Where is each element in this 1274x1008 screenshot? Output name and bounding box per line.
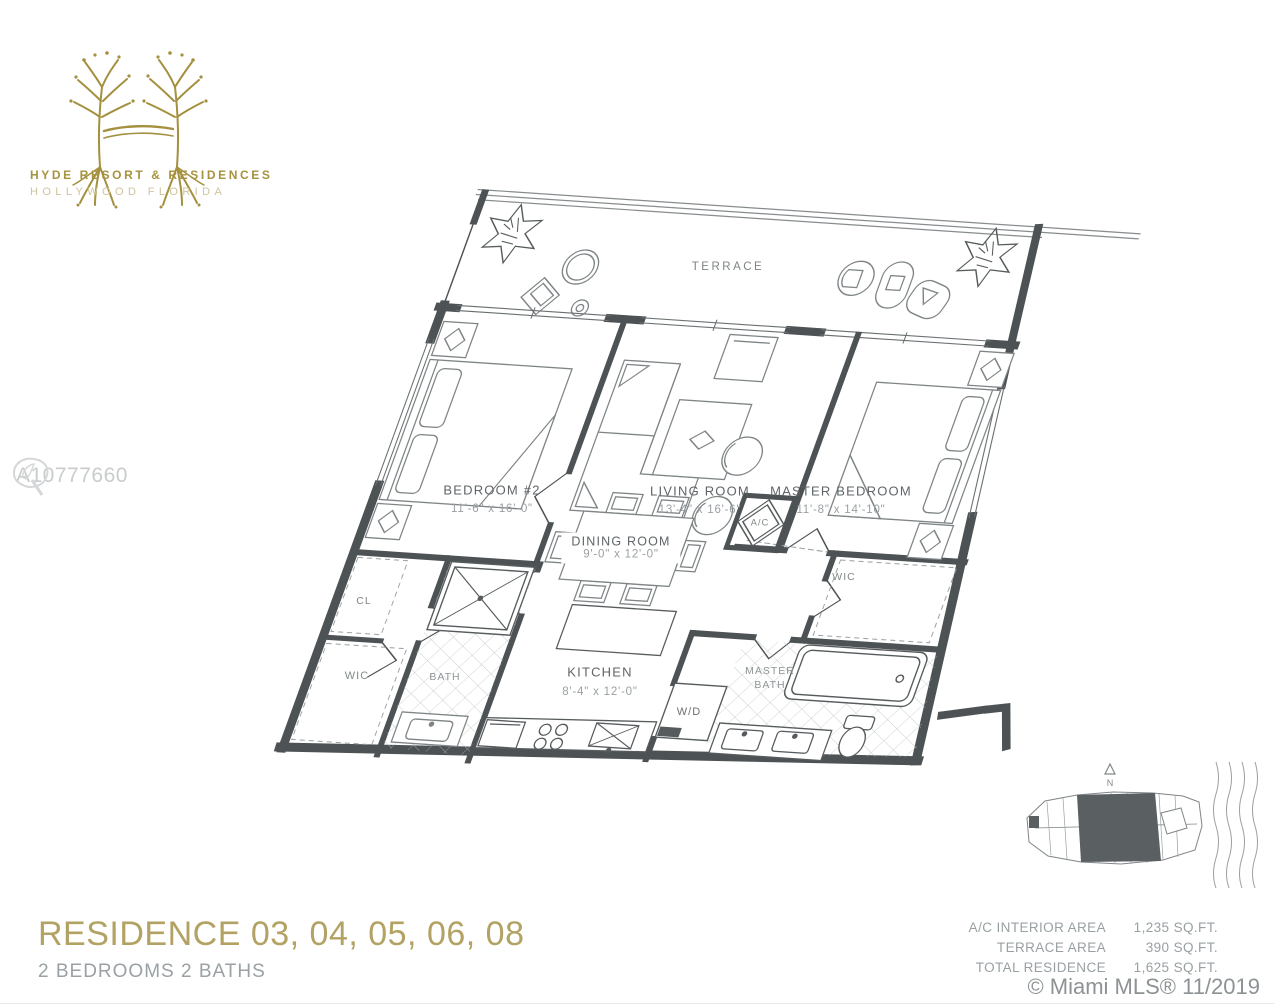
- living-dims: 13'-4" x 16'-6": [659, 504, 742, 516]
- area-label: A/C INTERIOR AREA: [906, 918, 1106, 938]
- brand-location: HOLLYWOOD FLORIDA: [30, 186, 272, 198]
- wd-label: W/D: [677, 706, 701, 718]
- terrace-railing: [474, 189, 1141, 243]
- master-bath-room: [703, 640, 952, 767]
- area-row-terrace: TERRACE AREA 390 SQ.FT.: [906, 938, 1218, 958]
- area-value: 1,235 SQ.FT.: [1106, 918, 1218, 938]
- residence-title: RESIDENCE 03, 04, 05, 06, 08: [38, 915, 524, 954]
- kitchen-dims: 8'-4" x 12'-0": [562, 686, 638, 698]
- master-dims: 11'-8" x 14'-10": [796, 504, 885, 516]
- north-label: N: [1107, 778, 1114, 788]
- terrace-label: TERRACE: [692, 261, 764, 273]
- mls-watermark: A10777660: [8, 464, 128, 488]
- brand-name: HYDE RESORT & RESIDENCES: [30, 168, 272, 182]
- master-label: MASTER BEDROOM: [770, 484, 912, 499]
- wic-master-label: WIC: [832, 571, 855, 583]
- master-bath-label-2: BATH: [754, 679, 785, 691]
- master-vanity: [709, 723, 832, 761]
- dining-label: DINING ROOM: [571, 535, 670, 549]
- keyplan-building: [1027, 792, 1202, 864]
- kitchen-label: KITCHEN: [567, 665, 632, 680]
- dining-label-box: DINING ROOM 9'-0" x 12'-0": [561, 533, 680, 564]
- dining-dims: 9'-0" x 12'-0": [571, 549, 670, 561]
- bedroom2-label: BEDROOM #2: [443, 483, 540, 498]
- area-label: TERRACE AREA: [906, 938, 1106, 958]
- floorplan-sheet: HYDE RESORT & RESIDENCES HOLLYWOOD FLORI…: [0, 0, 1274, 1008]
- area-table: A/C INTERIOR AREA 1,235 SQ.FT. TERRACE A…: [906, 918, 1218, 978]
- area-value: 390 SQ.FT.: [1106, 938, 1218, 958]
- terrace-plants: [475, 195, 1024, 296]
- living-label: LIVING ROOM: [650, 484, 750, 499]
- bathtub: [782, 644, 930, 707]
- title-block: RESIDENCE 03, 04, 05, 06, 08 2 BEDROOMS …: [38, 915, 524, 983]
- bath-vanity: [391, 712, 468, 746]
- keyplan-highlight: [1077, 793, 1161, 862]
- master-bath-label-1: MASTER: [745, 665, 795, 677]
- bottom-rule: [0, 1003, 1274, 1004]
- cl-label: CL: [356, 595, 371, 607]
- bath-label: BATH: [429, 671, 460, 683]
- terrace-furniture: [515, 238, 964, 341]
- wic-left-label: WIC: [345, 670, 369, 682]
- mls-copyright: © Miami MLS® 11/2019: [1027, 974, 1260, 1000]
- bedroom2-dims: 11'-6" x 16'-0": [451, 503, 533, 515]
- ocean-waves: [1208, 760, 1268, 890]
- area-row-interior: A/C INTERIOR AREA 1,235 SQ.FT.: [906, 918, 1218, 938]
- north-arrow-icon: [1105, 764, 1115, 774]
- ac-label: A/C: [751, 518, 770, 529]
- residence-subtitle: 2 BEDROOMS 2 BATHS: [38, 961, 524, 983]
- camera-icon: [8, 453, 54, 499]
- brand-block: HYDE RESORT & RESIDENCES HOLLYWOOD FLORI…: [30, 168, 272, 198]
